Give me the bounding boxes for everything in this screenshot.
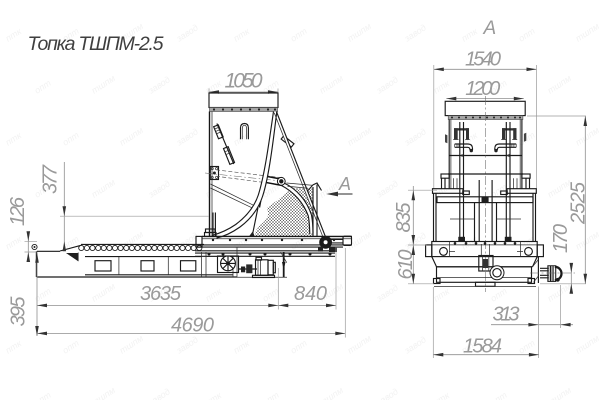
svg-text:2525: 2525 xyxy=(568,181,590,225)
svg-text:1540: 1540 xyxy=(465,49,501,71)
svg-text:3635: 3635 xyxy=(140,283,182,305)
svg-text:395: 395 xyxy=(8,296,30,327)
svg-text:A: A xyxy=(338,174,351,194)
svg-text:840: 840 xyxy=(294,283,327,305)
svg-text:835: 835 xyxy=(393,202,415,233)
svg-text:A: A xyxy=(483,18,497,39)
svg-text:1200: 1200 xyxy=(465,78,500,100)
svg-text:313: 313 xyxy=(493,304,520,326)
svg-text:1050: 1050 xyxy=(225,70,263,93)
svg-text:377: 377 xyxy=(40,164,62,194)
svg-text:170: 170 xyxy=(550,224,572,253)
svg-text:Топка ТШПМ-2.5: Топка ТШПМ-2.5 xyxy=(28,33,164,55)
svg-text:126: 126 xyxy=(7,196,29,226)
svg-text:1584: 1584 xyxy=(463,336,502,358)
